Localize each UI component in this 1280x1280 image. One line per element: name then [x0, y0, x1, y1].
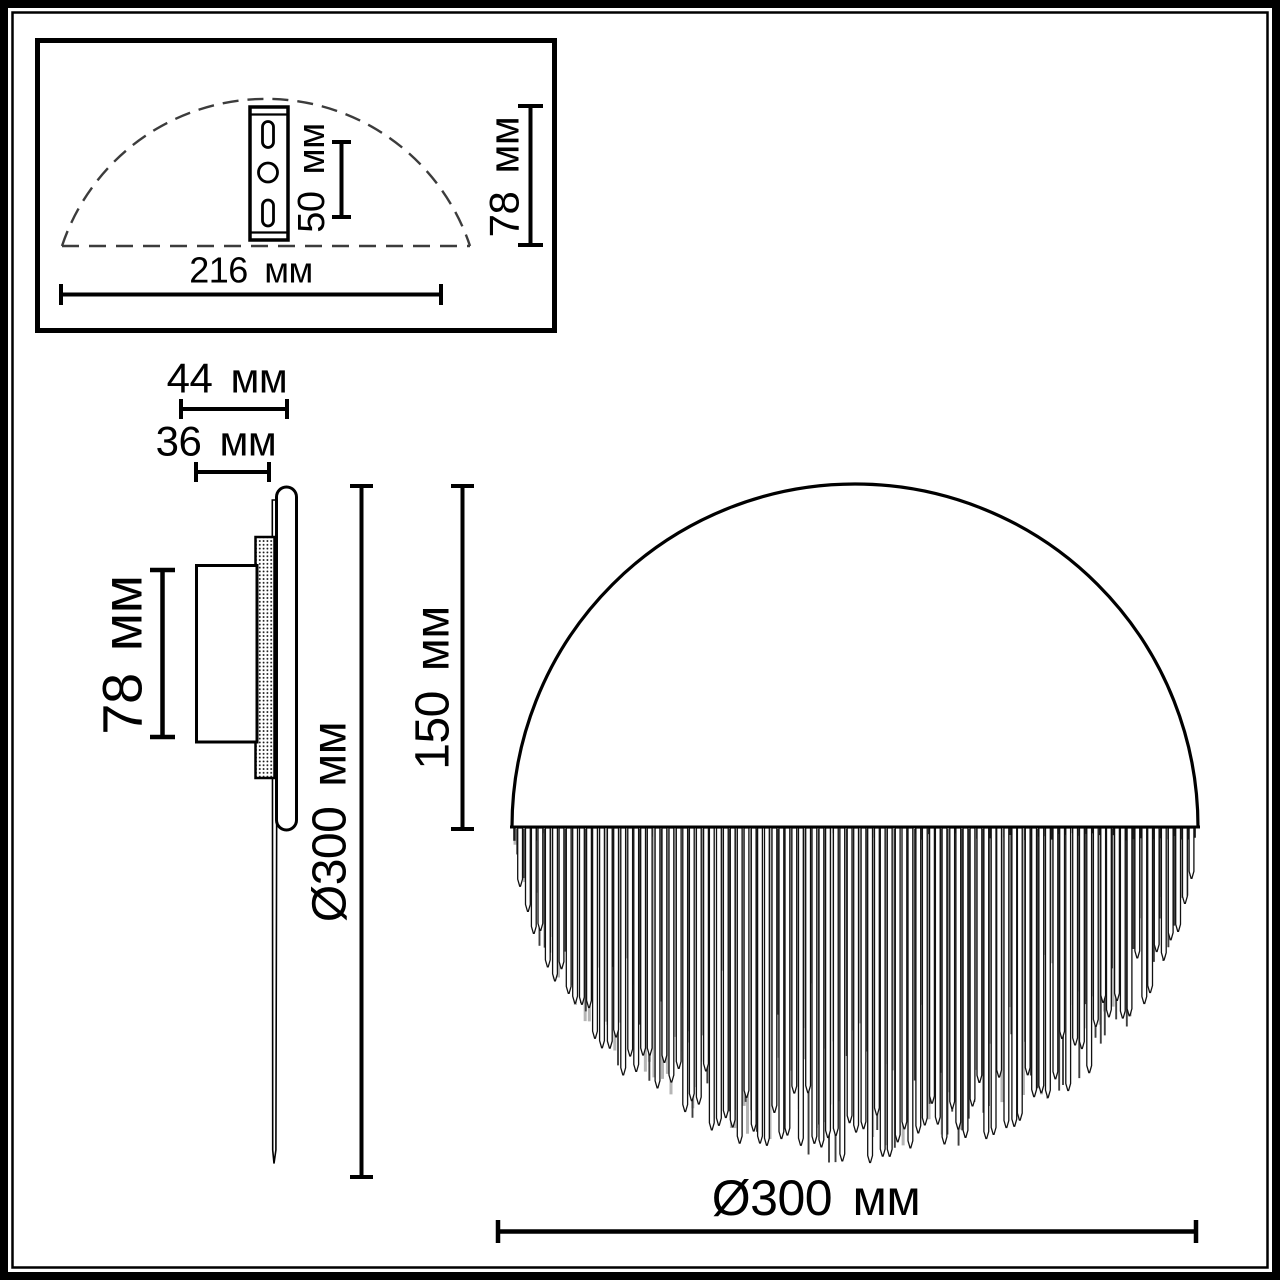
dim-line-mount-height — [150, 570, 175, 737]
fringe-strand — [963, 828, 968, 1137]
fringe-strand — [997, 828, 1002, 1077]
fringe-strand — [833, 828, 838, 1135]
dim-label-inset-depth: 78 мм — [481, 117, 528, 238]
technical-drawing-page: 50 мм 78 мм 216 мм 44 мм 36 мм 78 мм Ø30… — [0, 0, 1280, 1280]
fringe-strand — [922, 828, 927, 1125]
fringe-strand — [1115, 828, 1120, 1000]
fringe-strand — [806, 828, 811, 1093]
bracket-hole-center — [259, 163, 278, 182]
fringe-strand — [1046, 828, 1051, 1097]
fringe-strand — [970, 828, 975, 1106]
fringe-strand — [669, 828, 674, 1082]
fringe-strand — [526, 828, 531, 911]
fringe-strand — [1032, 828, 1037, 1097]
fringe-strand — [1120, 828, 1125, 1018]
dim-label-radius-height: 150 мм — [407, 606, 460, 769]
fringe-strand — [765, 828, 770, 1145]
fringe-strand — [984, 828, 989, 1139]
fringe-strand — [683, 828, 688, 1112]
fringe-strand — [587, 828, 592, 1008]
fringe-strand — [628, 828, 633, 1056]
dim-label-mount-height: 78 мм — [91, 575, 154, 734]
side-view: 44 мм 36 мм 78 мм Ø300 мм 150 мм — [91, 355, 475, 1178]
fringe-strand — [1142, 828, 1147, 1004]
fringe-strand — [531, 828, 536, 933]
fringe-strand — [799, 828, 804, 1145]
fringe-strand — [696, 828, 701, 1104]
fringe-strand — [538, 828, 543, 930]
fringe-strand — [751, 828, 756, 1131]
fringe-strand — [553, 828, 558, 981]
bracket-slot-top — [263, 122, 274, 148]
fringe-strand — [621, 828, 626, 1075]
fringe-strand — [1135, 828, 1140, 958]
dim-label-side-diameter: Ø300 мм — [304, 722, 357, 922]
fringe-strand — [676, 828, 681, 1068]
fringe-strand — [1025, 828, 1030, 1075]
fringe-strand — [826, 828, 831, 1138]
fringe-strand — [935, 828, 940, 1124]
fringe-strand — [1017, 828, 1022, 1120]
fringe-strand — [840, 828, 845, 1161]
fringe-strand — [647, 828, 652, 1055]
fringe-strand — [1080, 828, 1085, 1049]
fringe-strand — [709, 828, 714, 1130]
fringe-strand — [902, 828, 907, 1129]
fringe-strand — [887, 828, 892, 1156]
fringe-strand — [956, 828, 961, 1129]
fringe-strand — [1093, 828, 1098, 1026]
fringe-strand — [1148, 828, 1153, 993]
fringe-strand — [607, 828, 612, 1048]
fringe-strand — [785, 828, 790, 1135]
fringe-strand — [895, 828, 900, 1142]
dim-label-total-depth: 44 мм — [167, 355, 288, 402]
fringe-strand — [1101, 828, 1106, 1002]
fringe-strand — [1004, 828, 1009, 1128]
front-view: Ø300 мм — [498, 484, 1200, 1243]
fringe-strand — [1161, 828, 1166, 960]
fringe-strand — [573, 828, 578, 1003]
fringe-strand — [614, 828, 619, 1037]
side-mount-box — [197, 566, 258, 743]
fringe-strand — [723, 828, 728, 1118]
fringe-strand — [861, 828, 866, 1129]
fringe-strand — [634, 828, 639, 1071]
fringe-strand — [930, 828, 935, 1103]
fringe-strand — [662, 828, 667, 1062]
dim-line-plate-depth — [196, 462, 269, 482]
fringe-strand — [1183, 828, 1188, 903]
fringe-strand — [1168, 828, 1173, 940]
fringe-strand — [950, 828, 955, 1109]
fringe-strand — [1053, 828, 1058, 1079]
dim-label-front-diameter: Ø300 мм — [712, 1170, 920, 1226]
fringe-strand — [868, 828, 873, 1163]
fringe-strand — [1087, 828, 1092, 1073]
fringe-strand — [772, 828, 777, 1112]
fringe-strand — [641, 828, 646, 1055]
fringe-strand — [730, 828, 735, 1127]
front-dome-fill — [512, 484, 1198, 827]
fringe-strand — [812, 828, 817, 1143]
fringe-strand — [1107, 828, 1112, 1017]
fringe-strand — [744, 828, 749, 1097]
fringe-strand — [942, 828, 947, 1144]
dim-label-inset-width: 216 мм — [189, 250, 313, 291]
fringe-strand — [545, 828, 550, 967]
fringe-strand — [580, 828, 585, 1004]
fringe-strand — [655, 828, 660, 1088]
fringe-strand — [518, 828, 523, 886]
front-fringe — [514, 828, 1194, 1163]
fringe-strand — [1127, 828, 1132, 1016]
fringe-strand — [908, 828, 913, 1148]
fringe-strand — [566, 828, 571, 993]
dim-line-total-depth — [181, 399, 287, 419]
fringe-strand — [1060, 828, 1065, 1038]
fringe-strand — [854, 828, 859, 1132]
fringe-strand — [737, 828, 742, 1143]
fringe-strand — [1189, 828, 1194, 878]
fringe-strand — [593, 828, 598, 1038]
fringe-strand — [559, 828, 564, 969]
fringe-strand — [847, 828, 852, 1123]
fringe-strand — [717, 828, 722, 1125]
side-disc-profile — [277, 487, 297, 830]
fringe-strand — [1039, 828, 1044, 1093]
fringe-strand — [1073, 828, 1078, 1045]
fringe-strand — [977, 828, 982, 1082]
fringe-strand — [1066, 828, 1071, 1091]
fringe-strand — [779, 828, 784, 1139]
fringe-strand — [704, 828, 709, 1071]
fringe-strand — [916, 828, 921, 1133]
inset-top-view: 50 мм 78 мм 216 мм — [38, 41, 555, 331]
fringe-strand — [1176, 828, 1181, 931]
fringe-strand — [875, 828, 880, 1115]
bracket-slot-bottom — [263, 200, 274, 226]
fringe-strand — [819, 828, 824, 1147]
fringe-strand — [689, 828, 694, 1101]
dim-label-slot-spacing: 50 мм — [291, 123, 333, 233]
fringe-strand — [792, 828, 797, 1093]
fringe-strand — [758, 828, 763, 1143]
fringe-strand — [600, 828, 605, 1048]
fringe-strand — [880, 828, 885, 1156]
fringe-strand — [1154, 828, 1159, 952]
fringe-strand — [991, 828, 996, 1134]
fringe-strand — [1012, 828, 1017, 1126]
dim-label-plate-depth: 36 мм — [156, 418, 277, 465]
mounting-bracket — [250, 107, 288, 240]
lamp-dimension-drawing: 50 мм 78 мм 216 мм 44 мм 36 мм 78 мм Ø30… — [0, 0, 1280, 1280]
